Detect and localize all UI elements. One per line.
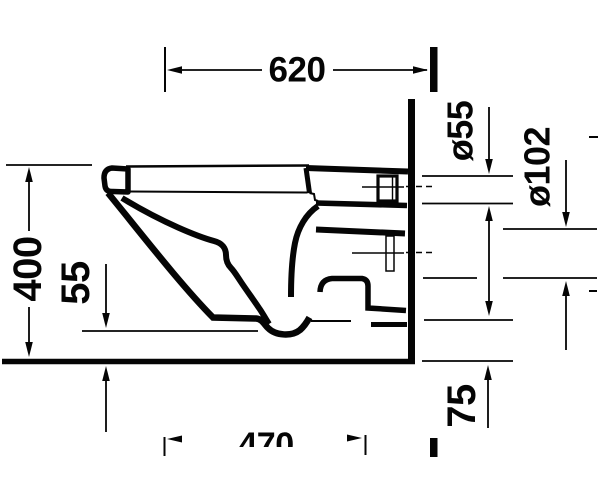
seat-line — [130, 192, 307, 193]
bowl-inner-profile — [122, 198, 269, 324]
flush-pipe-end — [378, 176, 397, 201]
dim-400-label: 400 — [6, 236, 50, 301]
arrow-up — [25, 167, 33, 182]
arrow-down — [485, 159, 493, 174]
dim-620: 620 — [165, 47, 438, 92]
bowl-outer-profile — [108, 193, 310, 334]
dim-470: 470 — [165, 426, 438, 487]
dim-620-wall-tick — [430, 47, 438, 92]
dim-55-label: 55 — [54, 261, 98, 305]
dim-55: 55 — [54, 261, 258, 432]
cistern-top-line — [306, 168, 408, 172]
dim-470-wall-tick — [430, 438, 438, 457]
arrow-right — [413, 66, 428, 74]
dim-o55-label: ø55 — [440, 100, 481, 161]
dim-620-label: 620 — [269, 51, 326, 90]
dim-75: 75 — [440, 365, 492, 428]
dimension-drawing-canvas: 620 400 55 ø55 ø102 — [0, 0, 600, 500]
arrow-down — [562, 212, 570, 227]
arrow-left-clipped — [167, 436, 182, 443]
arrow-down — [102, 313, 110, 328]
flush-block-notch — [310, 193, 319, 201]
trap-curve — [291, 206, 318, 297]
arrow-down — [485, 301, 493, 316]
front-rim-block — [104, 168, 128, 192]
outlet-top-line — [316, 230, 405, 234]
outlet-bottom-wall — [320, 279, 406, 311]
toilet-dimension-drawing: 620 400 55 ø55 ø102 — [0, 0, 600, 500]
flush-block-bottom — [316, 203, 407, 206]
top-edge-line — [126, 166, 309, 167]
flush-block-left-edge — [306, 168, 310, 193]
toilet-outline — [104, 166, 432, 335]
arrow-left — [167, 66, 182, 74]
dim-o55-chain: ø55 — [422, 100, 513, 361]
dim-o102-label: ø102 — [517, 127, 558, 207]
dim-75-label: 75 — [440, 384, 484, 428]
dim-400: 400 — [6, 165, 92, 357]
arrow-right-clipped — [347, 435, 362, 442]
arrow-down — [25, 342, 33, 357]
clip-mask — [205, 447, 335, 487]
